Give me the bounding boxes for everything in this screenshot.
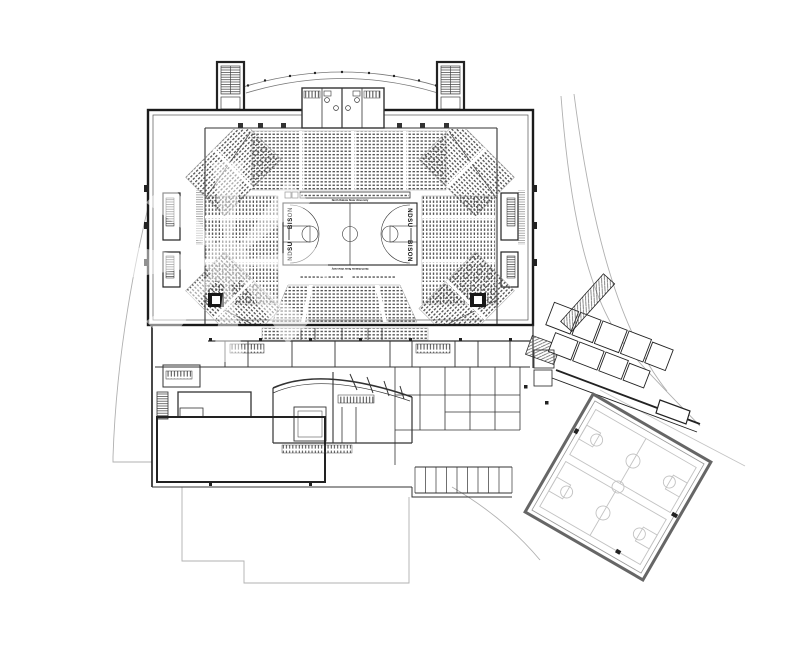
- counter-comb: [416, 344, 450, 353]
- toilet-stalls-left: [304, 91, 320, 98]
- bench-comb: [282, 445, 352, 453]
- stair-tower-right: [437, 62, 464, 112]
- locker-run: [507, 256, 515, 278]
- curved-media-room: [273, 372, 412, 443]
- locker-stall-row: [415, 467, 512, 493]
- court-text-baseline-bottom: North Dakota State University: [331, 267, 368, 271]
- connector-room: [534, 370, 552, 386]
- mid-room-cluster: [395, 367, 520, 465]
- corridor-end-room: [656, 400, 690, 424]
- site-curve-bottom-right: [452, 487, 540, 560]
- platform: [294, 407, 326, 441]
- stair-tower-left: [217, 62, 244, 112]
- floor-plan-canvas: BISON NDSU NDSU BISON North Dakota State…: [0, 0, 800, 669]
- locker-run: [507, 198, 515, 226]
- stair-shaft: [157, 392, 168, 419]
- court-text-baseline-top: North Dakota State University: [332, 198, 369, 202]
- seating-bank-top: [252, 131, 446, 190]
- wall-hatch: [518, 190, 525, 245]
- court-text-right-upper: NDSU: [406, 208, 412, 227]
- office-room: [178, 392, 251, 417]
- court-text-right-lower: BISON: [406, 240, 412, 262]
- floor-plan-drawing: BISON NDSU NDSU BISON North Dakota State…: [0, 0, 800, 669]
- site-terrace-outline: [182, 487, 409, 583]
- vomitory-entry-right: [470, 293, 486, 307]
- watermark: [128, 162, 328, 362]
- canopy-arc-outer: [243, 72, 441, 87]
- locker-comb: [166, 371, 192, 379]
- lower-level: [152, 325, 561, 497]
- courtside-row: [352, 275, 396, 279]
- angled-rooms: [537, 302, 674, 393]
- concourse-room-dividers: [225, 341, 510, 367]
- toilet-stalls-right: [364, 91, 380, 98]
- fixture-comb: [338, 395, 374, 403]
